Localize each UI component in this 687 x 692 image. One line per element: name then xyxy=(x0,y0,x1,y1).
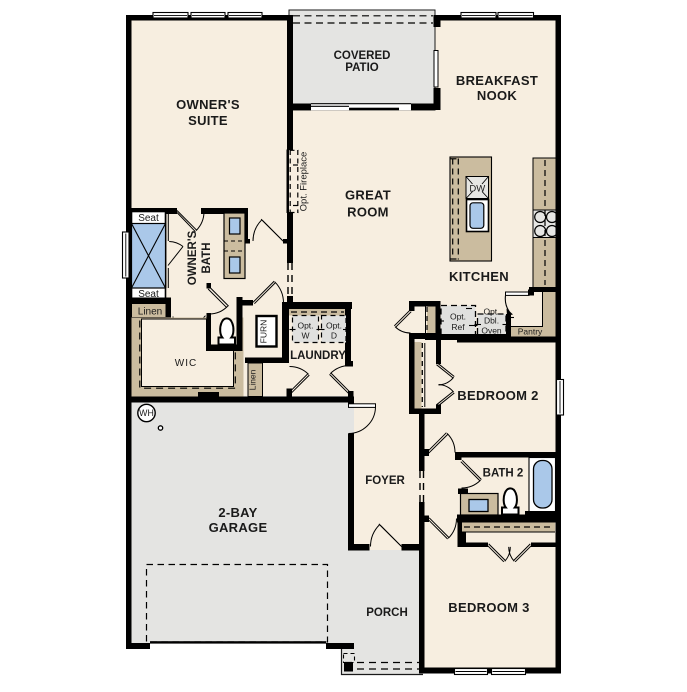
svg-text:OWNER'S: OWNER'S xyxy=(176,97,240,112)
svg-text:2-BAY: 2-BAY xyxy=(218,505,257,520)
svg-text:BEDROOM 3: BEDROOM 3 xyxy=(448,600,529,615)
svg-text:Opt.: Opt. xyxy=(297,321,313,331)
svg-text:Linen: Linen xyxy=(138,307,162,318)
svg-text:KITCHEN: KITCHEN xyxy=(449,269,509,284)
svg-text:LAUNDRY: LAUNDRY xyxy=(290,350,346,362)
svg-text:COVERED: COVERED xyxy=(334,50,391,62)
svg-text:Ref: Ref xyxy=(451,322,465,332)
svg-text:SUITE: SUITE xyxy=(188,113,228,128)
svg-text:GREAT: GREAT xyxy=(345,188,391,203)
svg-text:BATH 2: BATH 2 xyxy=(483,468,524,480)
svg-text:Linen: Linen xyxy=(248,369,258,390)
svg-text:BEDROOM 2: BEDROOM 2 xyxy=(457,388,538,403)
svg-text:FURN: FURN xyxy=(259,320,269,344)
svg-text:PORCH: PORCH xyxy=(366,607,408,619)
svg-text:Seat: Seat xyxy=(138,213,159,224)
svg-text:BATH: BATH xyxy=(201,242,213,273)
svg-text:W: W xyxy=(301,331,309,341)
svg-text:DW: DW xyxy=(469,184,485,195)
svg-text:Opt. Fireplace: Opt. Fireplace xyxy=(299,152,310,212)
svg-text:BREAKFAST: BREAKFAST xyxy=(456,73,538,88)
svg-text:GARAGE: GARAGE xyxy=(209,520,268,535)
svg-text:Opt.: Opt. xyxy=(326,321,342,331)
svg-text:NOOK: NOOK xyxy=(477,88,518,103)
svg-text:ROOM: ROOM xyxy=(347,205,389,220)
svg-text:Opt.: Opt. xyxy=(450,312,466,322)
svg-text:OWNER'S: OWNER'S xyxy=(187,230,199,285)
svg-text:PATIO: PATIO xyxy=(345,62,378,74)
svg-text:Dbl.: Dbl. xyxy=(484,316,499,326)
svg-text:Pantry: Pantry xyxy=(518,327,543,337)
svg-text:WIC: WIC xyxy=(175,358,197,369)
svg-text:FOYER: FOYER xyxy=(365,475,405,487)
svg-text:WH: WH xyxy=(139,408,154,418)
svg-text:D: D xyxy=(331,331,337,341)
